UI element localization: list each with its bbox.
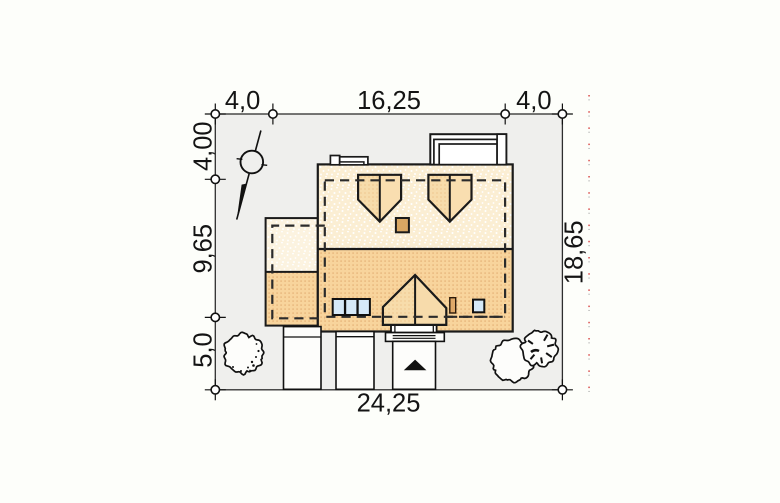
svg-text:4,0: 4,0 xyxy=(225,87,260,115)
svg-text:9,65: 9,65 xyxy=(190,224,218,274)
svg-text:18,65: 18,65 xyxy=(561,220,589,284)
svg-text:4,00: 4,00 xyxy=(190,121,218,171)
svg-text:5,0: 5,0 xyxy=(190,332,218,367)
svg-text:4,0: 4,0 xyxy=(516,87,551,115)
svg-text:24,25: 24,25 xyxy=(357,390,421,418)
svg-text:16,25: 16,25 xyxy=(357,87,421,115)
